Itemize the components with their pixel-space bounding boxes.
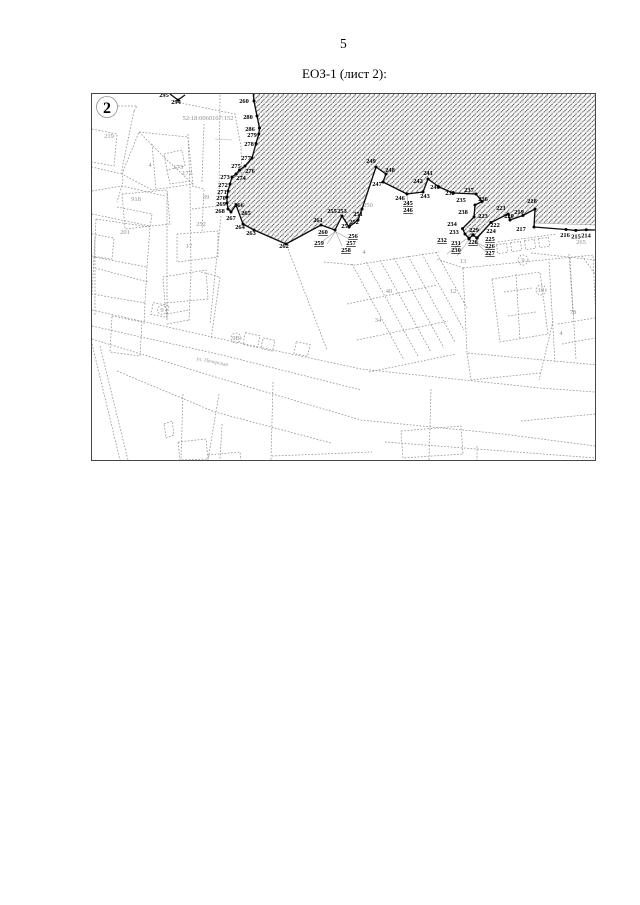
svg-text:233: 233 (449, 229, 459, 236)
svg-text:254: 254 (341, 223, 351, 230)
svg-text:17: 17 (186, 243, 193, 250)
svg-text:240: 240 (430, 184, 440, 191)
svg-text:295: 295 (159, 94, 169, 99)
svg-text:224: 224 (486, 228, 496, 235)
svg-text:228: 228 (468, 239, 478, 246)
svg-text:235: 235 (456, 197, 466, 204)
svg-text:257: 257 (346, 240, 356, 247)
svg-text:218: 218 (527, 198, 537, 205)
svg-text:227: 227 (485, 250, 495, 257)
svg-text:52:18:0060107:152: 52:18:0060107:152 (183, 115, 234, 122)
svg-text:2: 2 (103, 100, 111, 117)
svg-text:267: 267 (226, 215, 236, 222)
svg-text:241: 241 (423, 170, 433, 177)
svg-text:918: 918 (131, 196, 141, 203)
svg-text:278: 278 (244, 141, 254, 148)
svg-text:294: 294 (171, 99, 181, 106)
svg-text:261: 261 (313, 217, 323, 224)
svg-text:216: 216 (560, 232, 570, 239)
svg-text:259: 259 (314, 240, 324, 247)
svg-text:226: 226 (485, 243, 495, 250)
svg-text:243: 243 (420, 193, 430, 200)
svg-text:4: 4 (148, 162, 152, 169)
svg-text:251: 251 (353, 211, 363, 218)
svg-text:12: 12 (450, 288, 457, 295)
svg-text:273: 273 (220, 174, 230, 181)
svg-text:263: 263 (246, 230, 256, 237)
svg-text:9: 9 (160, 307, 163, 314)
svg-text:237: 237 (464, 187, 474, 194)
svg-text:10: 10 (538, 287, 545, 294)
svg-text:252: 252 (196, 221, 206, 228)
svg-text:250: 250 (363, 202, 373, 209)
svg-text:249: 249 (366, 158, 376, 165)
svg-text:269: 269 (216, 201, 226, 208)
svg-text:268: 268 (215, 208, 225, 215)
svg-text:229: 229 (469, 227, 479, 234)
svg-text:9В: 9В (232, 335, 240, 342)
svg-text:78: 78 (570, 309, 577, 316)
svg-text:265: 265 (576, 239, 586, 246)
svg-text:217: 217 (516, 226, 526, 233)
svg-text:231: 231 (451, 240, 461, 247)
svg-text:255: 255 (327, 208, 337, 215)
svg-text:225: 225 (485, 236, 495, 243)
svg-text:4: 4 (559, 330, 563, 337)
svg-text:258: 258 (341, 247, 351, 254)
svg-text:265: 265 (241, 210, 251, 217)
svg-text:272: 272 (218, 182, 228, 189)
svg-text:220: 220 (504, 213, 514, 220)
svg-text:219: 219 (514, 209, 524, 216)
svg-text:279: 279 (247, 132, 257, 139)
svg-text:274: 274 (236, 175, 246, 182)
svg-text:276: 276 (245, 168, 255, 175)
svg-text:253: 253 (337, 208, 347, 215)
svg-text:256: 256 (348, 233, 358, 240)
svg-text:247: 247 (372, 181, 382, 188)
svg-text:245: 245 (403, 200, 413, 207)
svg-text:266: 266 (234, 202, 244, 209)
svg-text:222: 222 (490, 222, 500, 229)
svg-text:39: 39 (203, 194, 210, 201)
svg-text:239: 239 (445, 190, 455, 197)
svg-text:ул. Печерская: ул. Печерская (196, 356, 229, 368)
svg-text:201: 201 (120, 229, 130, 236)
svg-text:260: 260 (318, 229, 328, 236)
svg-text:13: 13 (460, 258, 467, 265)
svg-text:9: 9 (521, 257, 524, 264)
svg-text:172: 172 (182, 170, 192, 177)
svg-text:246: 246 (403, 207, 413, 214)
svg-text:280: 280 (243, 114, 253, 121)
svg-text:260: 260 (239, 98, 249, 105)
svg-text:232: 232 (437, 237, 447, 244)
svg-text:242: 242 (413, 178, 423, 185)
svg-text:234: 234 (447, 221, 457, 228)
svg-text:238: 238 (458, 209, 468, 216)
svg-text:230: 230 (451, 247, 461, 254)
svg-text:4: 4 (362, 249, 366, 256)
svg-text:34: 34 (375, 317, 382, 324)
svg-text:219: 219 (104, 133, 114, 140)
svg-text:262: 262 (279, 243, 289, 250)
svg-text:236: 236 (478, 196, 488, 203)
svg-text:221: 221 (496, 205, 506, 212)
svg-text:248: 248 (385, 167, 395, 174)
svg-text:264: 264 (235, 224, 245, 231)
svg-text:223: 223 (478, 213, 488, 220)
svg-text:275: 275 (231, 163, 241, 170)
svg-text:277: 277 (241, 155, 251, 162)
svg-text:40: 40 (386, 288, 393, 295)
